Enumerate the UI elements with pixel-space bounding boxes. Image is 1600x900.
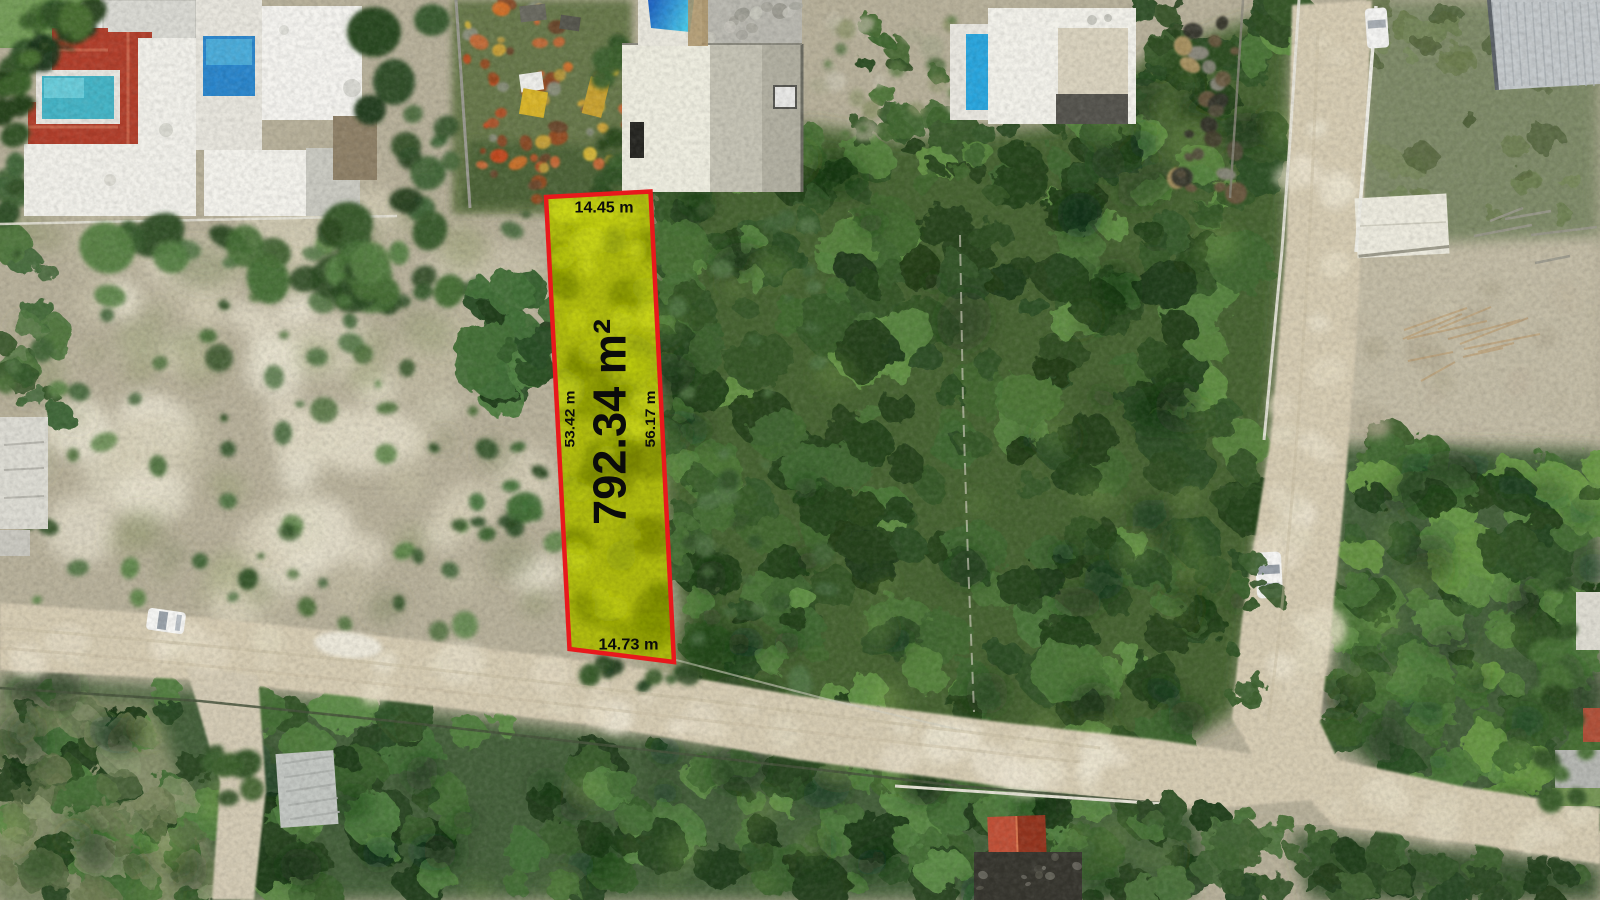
svg-text:14.73 m: 14.73 m	[599, 637, 659, 654]
svg-text:56.17 m: 56.17 m	[643, 391, 658, 448]
svg-text:792.34 m²: 792.34 m²	[584, 319, 636, 525]
svg-text:14.45 m: 14.45 m	[575, 200, 634, 217]
svg-text:53.42 m: 53.42 m	[562, 391, 577, 448]
